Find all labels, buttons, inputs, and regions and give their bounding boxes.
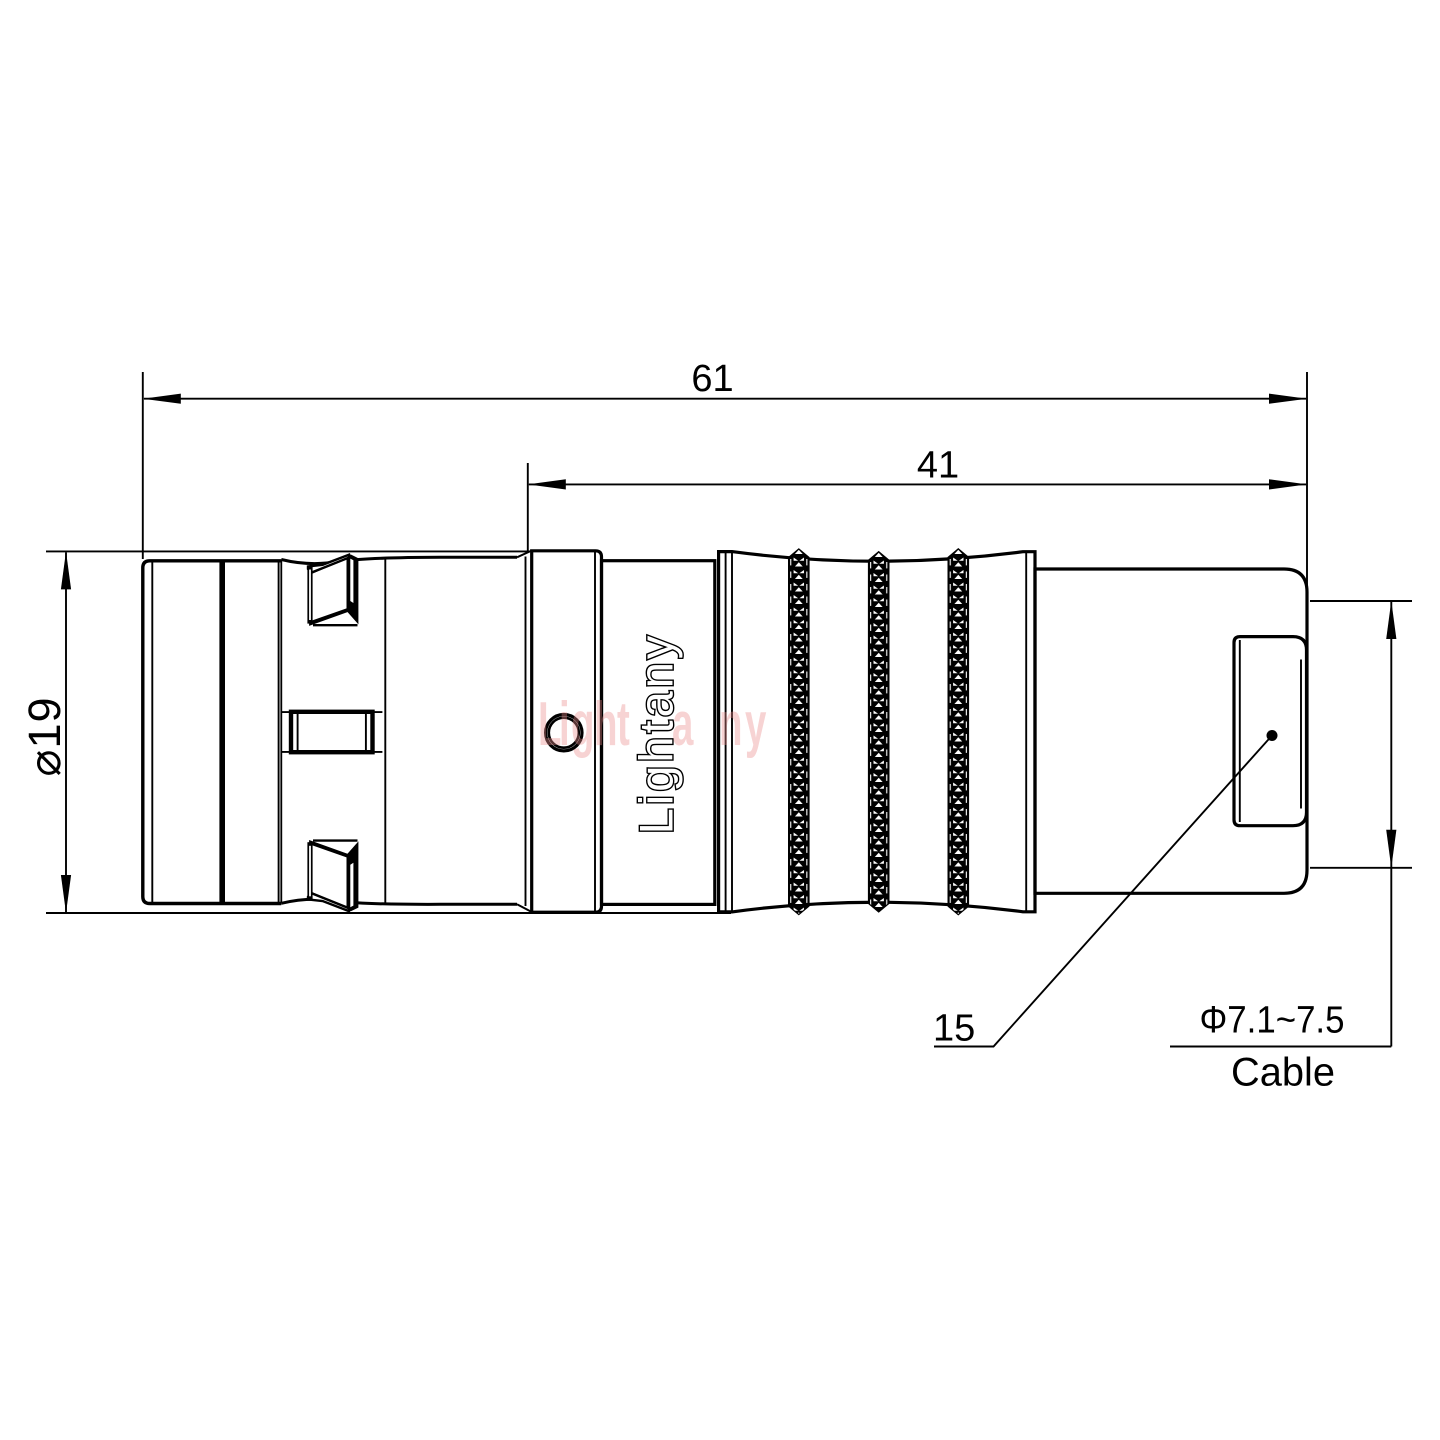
svg-text:t: t (617, 689, 630, 759)
svg-text:⌀19: ⌀19 (19, 696, 70, 776)
svg-text:Cable: Cable (1231, 1051, 1335, 1095)
svg-text:15: 15 (933, 1008, 975, 1050)
svg-text:41: 41 (917, 445, 959, 487)
svg-text:61: 61 (691, 358, 733, 400)
svg-text:a: a (672, 689, 694, 759)
svg-text:h: h (594, 689, 617, 759)
svg-text:L: L (538, 689, 561, 759)
svg-text:i: i (559, 689, 570, 759)
svg-text:n: n (719, 689, 742, 759)
svg-text:g: g (571, 689, 594, 759)
svg-text:y: y (745, 689, 767, 759)
svg-text:Φ7.1~7.5: Φ7.1~7.5 (1200, 1000, 1345, 1042)
